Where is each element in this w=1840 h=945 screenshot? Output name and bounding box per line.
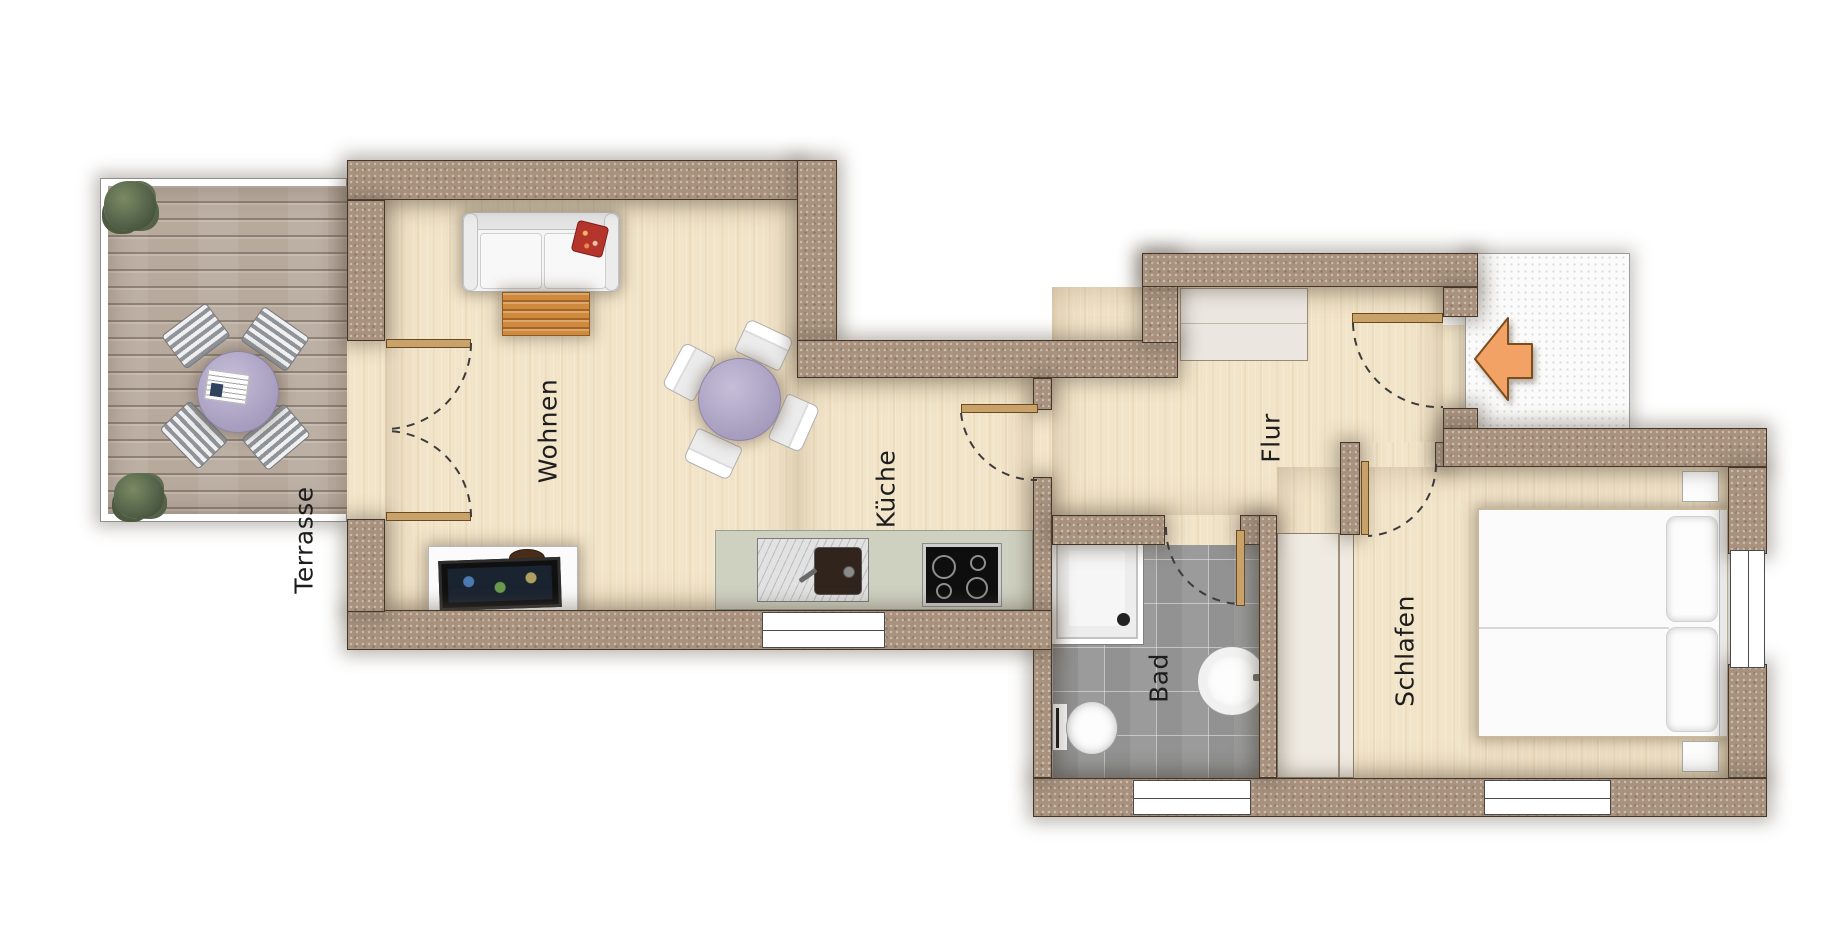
room-label-wohnen: Wohnen: [534, 379, 563, 483]
window-mullion: [1485, 798, 1610, 799]
headboard: [1719, 510, 1727, 736]
entrance-platform: [1465, 253, 1630, 430]
plant-icon: [114, 473, 164, 519]
nightstand: [1682, 741, 1719, 772]
burner-icon: [936, 583, 952, 599]
terrace-deck: [108, 186, 347, 514]
window-mullion: [1134, 798, 1250, 799]
shower: [1050, 532, 1144, 645]
bedroom-door-threshold: [1360, 442, 1443, 467]
bedroom-door-leaf: [1361, 461, 1369, 535]
double-bed: [1477, 508, 1727, 738]
duvet-split: [1479, 627, 1669, 629]
room-label-kueche: Küche: [872, 450, 901, 528]
sink-drain: [843, 566, 855, 578]
cistern-button: [1056, 708, 1059, 748]
tv-sideboard: [428, 546, 578, 612]
window-mullion: [1748, 551, 1749, 667]
toilet: [1066, 701, 1118, 755]
kitchen-sink: [757, 538, 869, 602]
cooktop: [922, 543, 1002, 607]
burner-icon: [932, 555, 956, 579]
terrace-door-threshold: [347, 340, 385, 520]
room-label-bad: Bad: [1145, 653, 1174, 703]
hall-door-leaf: [961, 404, 1038, 413]
room-label-flur: Flur: [1257, 413, 1286, 462]
bedroom-window-east: [1730, 550, 1765, 668]
cooktop-glass: [926, 547, 998, 603]
wall: [1259, 515, 1277, 778]
sofa: [462, 212, 620, 292]
wall: [797, 340, 1178, 378]
wall: [1142, 253, 1478, 287]
bathroom-door-leaf: [1236, 530, 1245, 606]
sink-bowl: [814, 547, 862, 595]
bed-pillow: [1666, 516, 1718, 622]
wall: [347, 200, 385, 341]
nightstand: [1682, 471, 1719, 502]
wall: [347, 519, 385, 612]
wall: [347, 160, 799, 200]
room-label-schlafen: Schlafen: [1391, 595, 1420, 707]
entrance-door-leaf: [1352, 313, 1443, 323]
plant-icon: [104, 181, 156, 231]
wall: [1443, 287, 1478, 317]
floor-plan: Terrasse Wohnen Küche Flur Bad Schlafen: [0, 0, 1840, 945]
newspaper: [204, 369, 250, 405]
wall: [1728, 664, 1767, 778]
hall-door-threshold: [1033, 408, 1052, 477]
sofa-cushion: [480, 233, 542, 289]
bed-pillow: [1666, 627, 1718, 732]
wall: [1728, 467, 1767, 554]
tv-screen: [447, 565, 552, 603]
shower-drain: [1117, 613, 1130, 626]
sofa-arm: [604, 213, 619, 291]
window-mullion: [763, 630, 884, 631]
kitchen-window: [762, 612, 885, 648]
newspaper-photo: [210, 383, 224, 398]
bedroom-window-south: [1484, 780, 1611, 815]
terrace-door-leaf: [386, 339, 471, 348]
terrace-door-leaf: [386, 512, 471, 521]
washbasin: [1197, 646, 1267, 716]
wall: [1052, 515, 1165, 545]
wall: [1443, 428, 1767, 467]
hall-sideboard: [1180, 288, 1308, 361]
wall: [1340, 442, 1360, 535]
coffee-table: [502, 292, 590, 336]
wardrobe: [1277, 533, 1354, 778]
burner-icon: [966, 577, 988, 599]
burner-icon: [970, 555, 986, 571]
flat-tv: [438, 557, 562, 611]
dining-table: [698, 358, 781, 441]
bathroom-window: [1133, 780, 1251, 815]
wall: [347, 610, 1052, 650]
room-label-terrasse: Terrasse: [290, 486, 319, 593]
wall: [797, 160, 837, 342]
sofa-arm: [463, 213, 478, 291]
bath-door-threshold: [1165, 515, 1240, 545]
